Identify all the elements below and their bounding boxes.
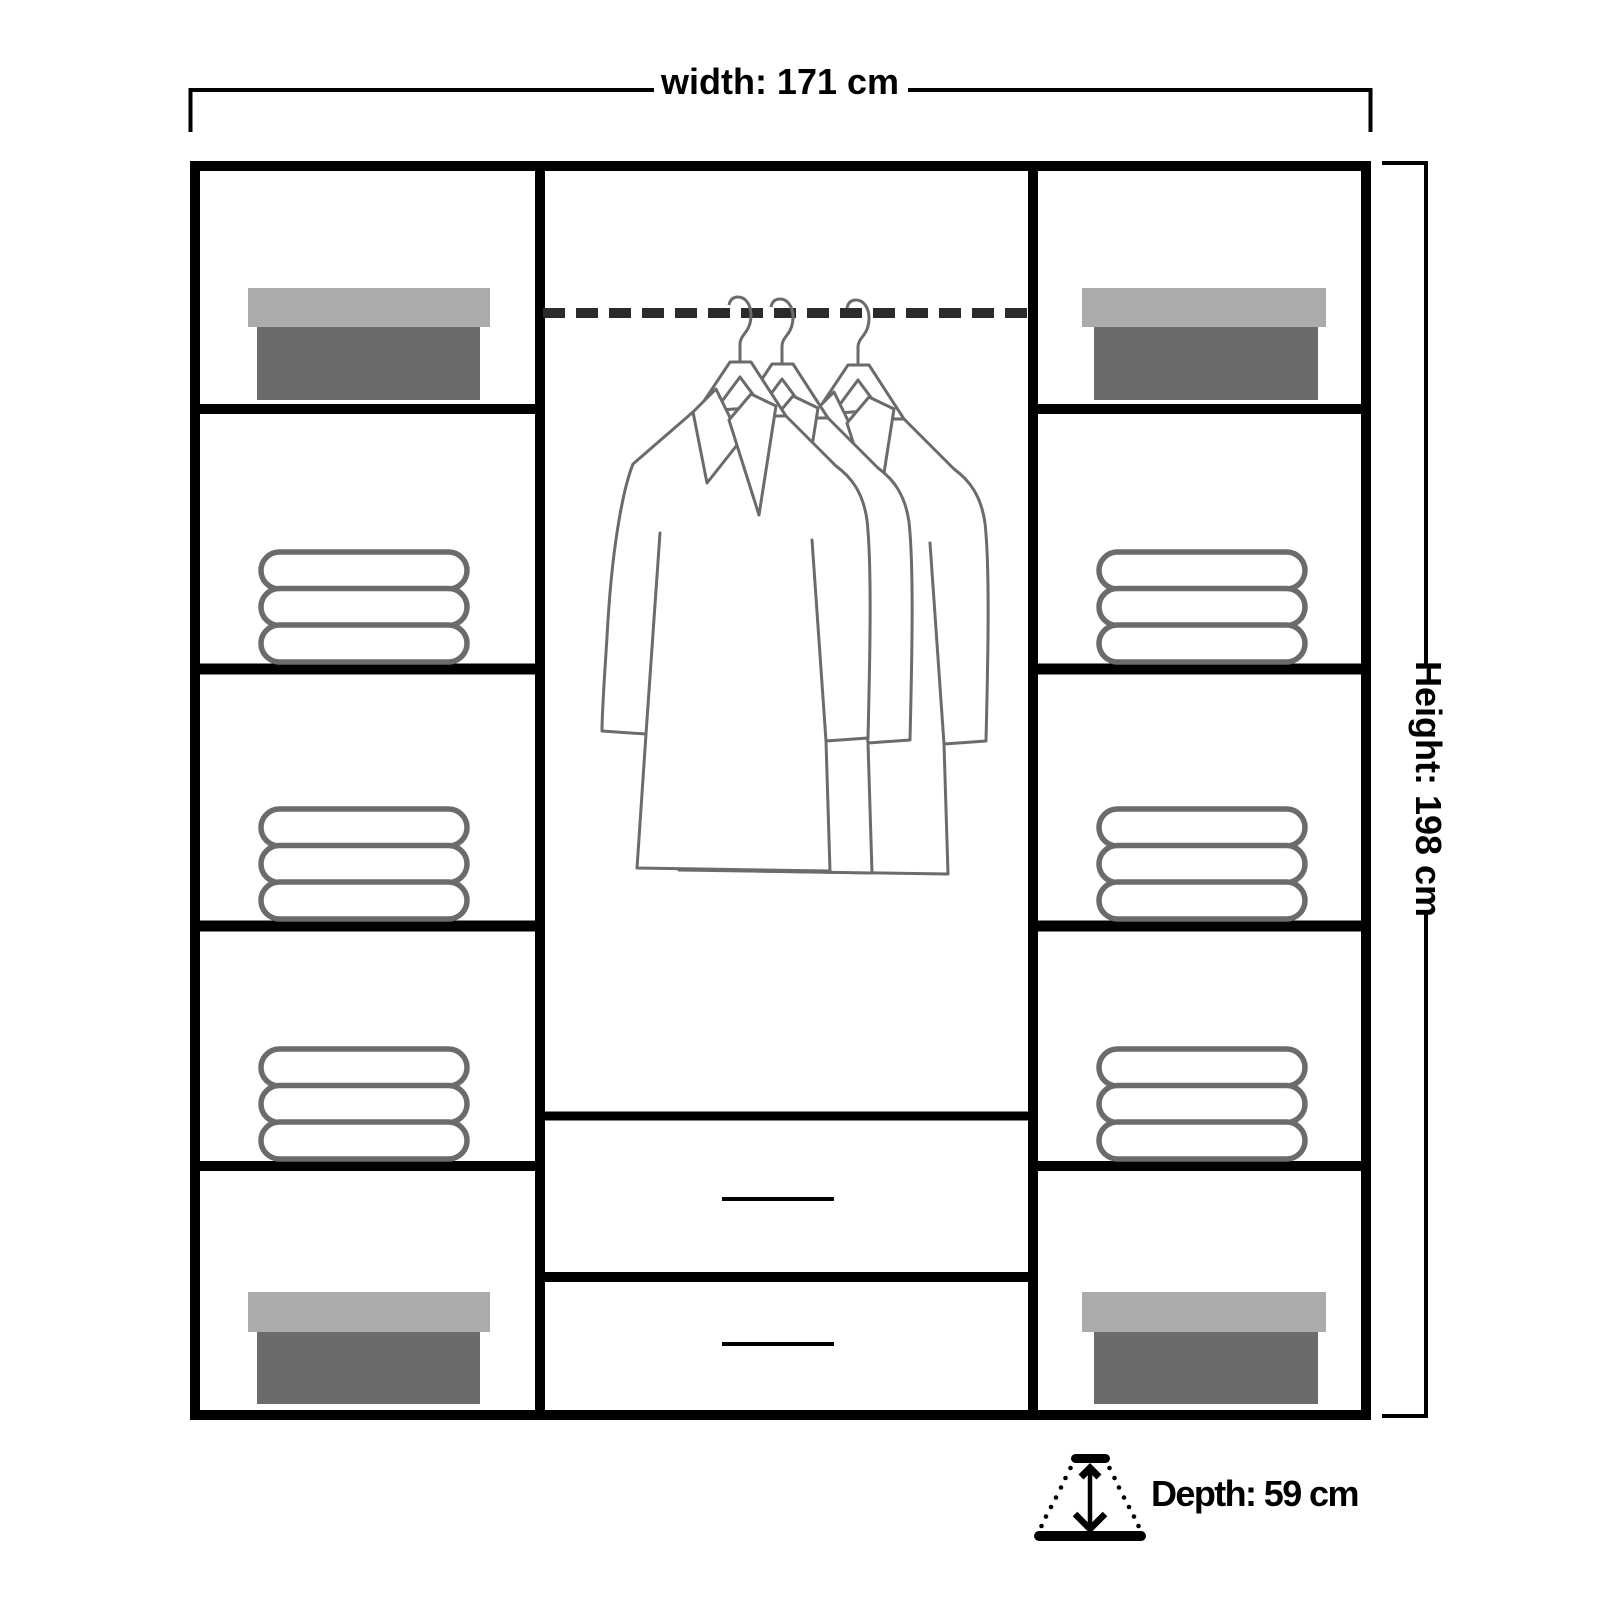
svg-text:width: 171 cm: width: 171 cm bbox=[660, 61, 899, 102]
svg-text:Depth: 59 cm: Depth: 59 cm bbox=[1151, 1473, 1358, 1514]
svg-text:Height: 198 cm: Height: 198 cm bbox=[1408, 661, 1449, 917]
